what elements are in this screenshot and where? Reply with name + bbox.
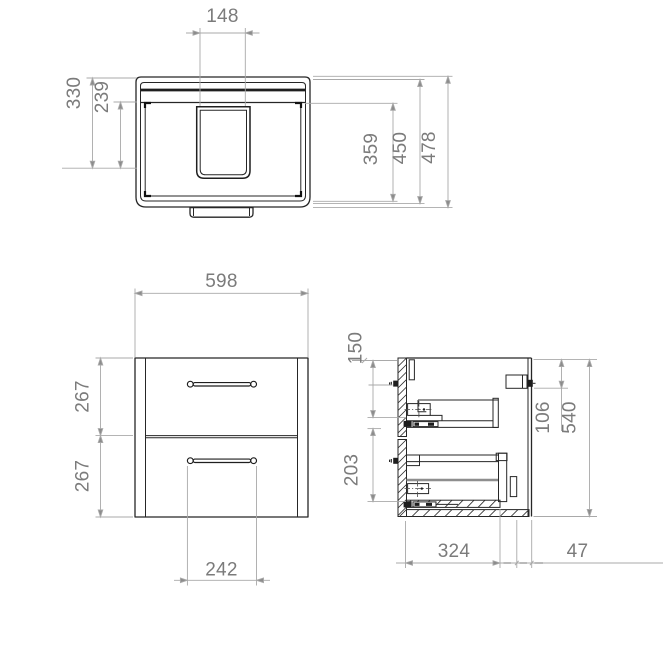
rail-clip bbox=[407, 455, 420, 466]
drain-tab bbox=[190, 208, 253, 218]
drawing-canvas: 148 330 239 359 bbox=[0, 0, 664, 664]
basin-cutout-inner bbox=[200, 110, 246, 175]
lower-drawer-back-cap bbox=[496, 453, 507, 460]
lower-drawer-section bbox=[404, 453, 517, 507]
dim-inner-depth-chain bbox=[396, 509, 663, 568]
dim-label-handle-spacing: 242 bbox=[205, 560, 238, 581]
top-view: 148 330 239 359 bbox=[62, 6, 453, 217]
front-view: 598 267 267 242 bbox=[73, 271, 309, 586]
dim-lower-drawer-height bbox=[96, 436, 134, 517]
upper-drawer-back bbox=[493, 398, 498, 427]
dim-label-basin-depth: 239 bbox=[92, 81, 113, 114]
cabinet-bottom-section bbox=[407, 510, 530, 517]
dim-overall-width bbox=[135, 289, 308, 358]
dim-label-overall-width: 598 bbox=[205, 271, 238, 292]
dim-label-back-depth: 330 bbox=[64, 77, 85, 110]
dim-label-cutout-width: 148 bbox=[206, 6, 239, 27]
dim-basin-cutout-width bbox=[186, 28, 260, 106]
dim-label-inner-depth: 324 bbox=[438, 541, 471, 562]
dim-label-top-fixing-offset: 150 bbox=[346, 332, 367, 365]
dim-label-lower-drawer-height: 267 bbox=[73, 460, 94, 493]
back-bracket-tab bbox=[510, 477, 516, 497]
dim-overall-height bbox=[534, 360, 598, 517]
technical-drawing: 148 330 239 359 bbox=[0, 0, 664, 664]
countertop-inner-outline bbox=[141, 83, 306, 202]
countertop-outline bbox=[136, 77, 310, 207]
dim-front-depth bbox=[305, 103, 398, 201]
dim-label-lower-fixing-offset: 203 bbox=[342, 454, 363, 487]
side-view: 150 203 106 540 bbox=[342, 332, 664, 568]
dim-upper-drawer-height bbox=[96, 358, 134, 436]
corner-marks bbox=[145, 103, 301, 196]
dim-label-inner-depth: 450 bbox=[390, 132, 411, 165]
lower-fixing-screw bbox=[390, 458, 398, 464]
dim-label-upper-drawer-height: 267 bbox=[73, 380, 94, 413]
dim-label-overall-depth: 478 bbox=[419, 131, 440, 164]
dim-label-hanger-offset: 106 bbox=[533, 401, 554, 434]
basin-cutout bbox=[197, 107, 250, 179]
dim-label-front-depth: 359 bbox=[361, 133, 382, 166]
side-panel-front-edge bbox=[409, 360, 414, 380]
upper-drawer-handle bbox=[187, 381, 256, 387]
dim-basin-depth bbox=[114, 102, 138, 168]
dim-label-overall-height: 540 bbox=[560, 401, 581, 434]
upper-slide-runner bbox=[404, 421, 438, 427]
lower-drawer-handle bbox=[187, 458, 256, 464]
upper-drawer-section bbox=[404, 398, 499, 427]
dim-label-back-clearance: 47 bbox=[567, 541, 589, 562]
upper-fixing-screw bbox=[390, 381, 398, 387]
